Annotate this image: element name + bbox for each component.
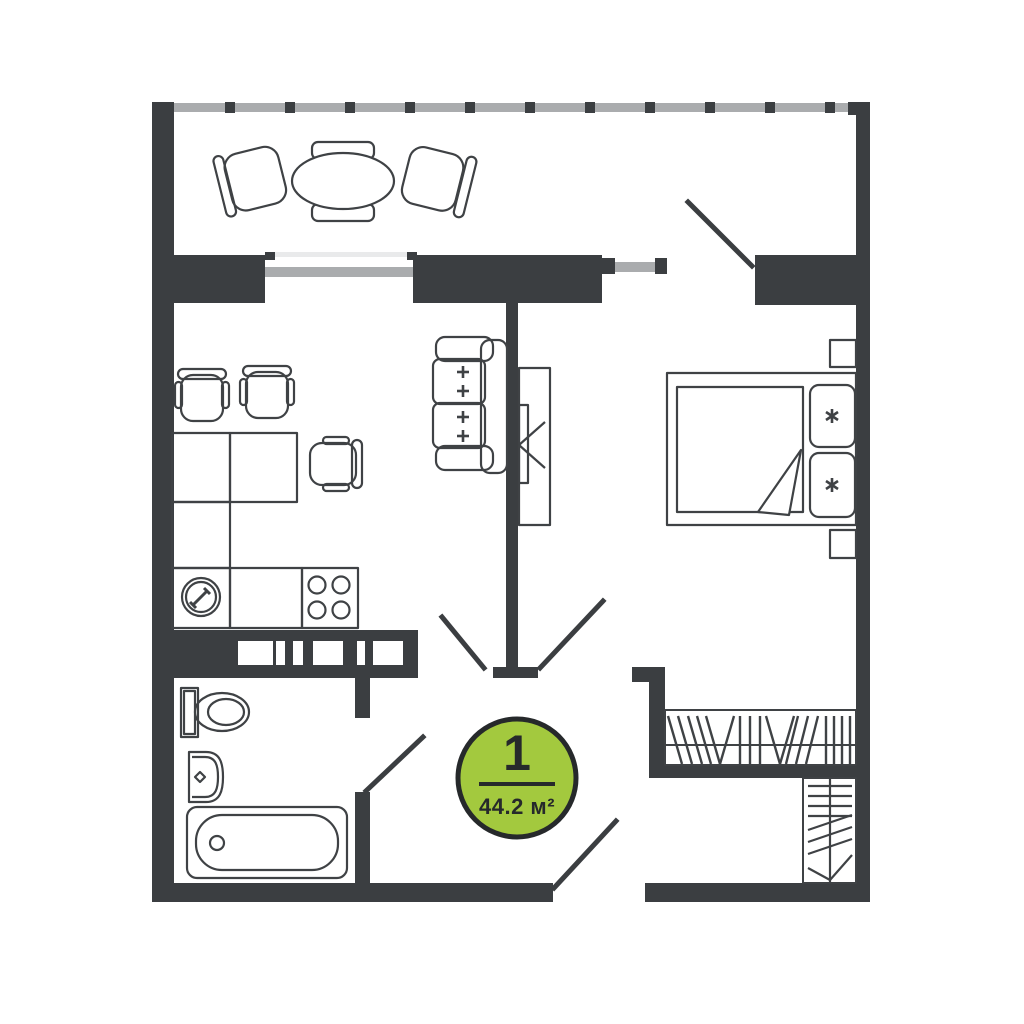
toilet-icon <box>181 688 249 737</box>
stove-icon <box>309 577 350 619</box>
connector-cap-right <box>655 258 667 274</box>
balcony-door-icon <box>688 202 752 266</box>
badge-apartment-number: 1 <box>503 725 531 781</box>
kitchen-window-sill <box>265 252 417 257</box>
kitchen-chair-2-icon <box>240 366 294 418</box>
apartment-badge[interactable]: 1 44.2 м² <box>458 719 576 837</box>
kitchen-chair-3-icon <box>310 437 362 491</box>
nightstand-top-icon <box>830 340 856 367</box>
kitchen-window-bar <box>265 267 417 277</box>
opening-mark-left-icon <box>442 617 484 668</box>
badge-area-label: 44.2 м² <box>479 794 555 819</box>
window-cap-right <box>407 252 417 260</box>
washbasin-icon <box>189 752 223 802</box>
bathtub-icon <box>187 807 347 878</box>
balcony-facade-band <box>174 103 848 112</box>
sofa-icon <box>433 337 507 473</box>
balcony-chair-right-icon <box>398 142 477 218</box>
wall-closet-band <box>649 765 865 778</box>
kitchen-sink-icon <box>182 578 220 616</box>
wall-left <box>152 102 174 902</box>
connector-window-bar <box>613 262 657 272</box>
wall-bathroom-stub <box>355 678 370 718</box>
shelf-unit-icon <box>803 778 856 883</box>
wall-balcony-c <box>755 255 858 305</box>
wardrobe-hangers-icon <box>665 710 856 765</box>
wall-corner-top-left <box>152 102 174 115</box>
wall-bottom-left <box>152 883 553 902</box>
wall-bathroom-lower <box>355 792 370 883</box>
balcony-chair-left-icon <box>212 142 289 218</box>
wall-bottom-right <box>645 883 870 902</box>
balcony-glazing <box>174 103 848 277</box>
window-sill <box>265 252 417 257</box>
bathroom-door-icon <box>366 737 423 791</box>
kitchen-chair-1-icon <box>175 369 229 421</box>
bed-icon <box>667 373 856 525</box>
window-cap-left <box>265 252 275 260</box>
wall-partition-base <box>493 667 538 678</box>
connector-cap-left <box>602 258 615 274</box>
nightstand-bottom-icon <box>830 530 856 558</box>
pillow-star-icon <box>826 409 838 492</box>
floor-plan: 1 44.2 м² <box>0 0 1024 1024</box>
tv-icon <box>519 368 550 525</box>
entrance-door-icon <box>554 821 616 888</box>
balcony-dining-set-icon <box>212 142 477 221</box>
floor-plan-drawing: 1 44.2 м² <box>0 0 1024 1024</box>
wall-right <box>856 102 870 902</box>
wall-closet-vertical <box>649 667 665 778</box>
opening-mark-right-icon <box>540 601 603 668</box>
vent-slots <box>238 641 403 665</box>
wall-balcony-b <box>413 255 602 303</box>
wall-corner-top-right <box>848 102 870 115</box>
wall-balcony-a <box>174 255 265 303</box>
